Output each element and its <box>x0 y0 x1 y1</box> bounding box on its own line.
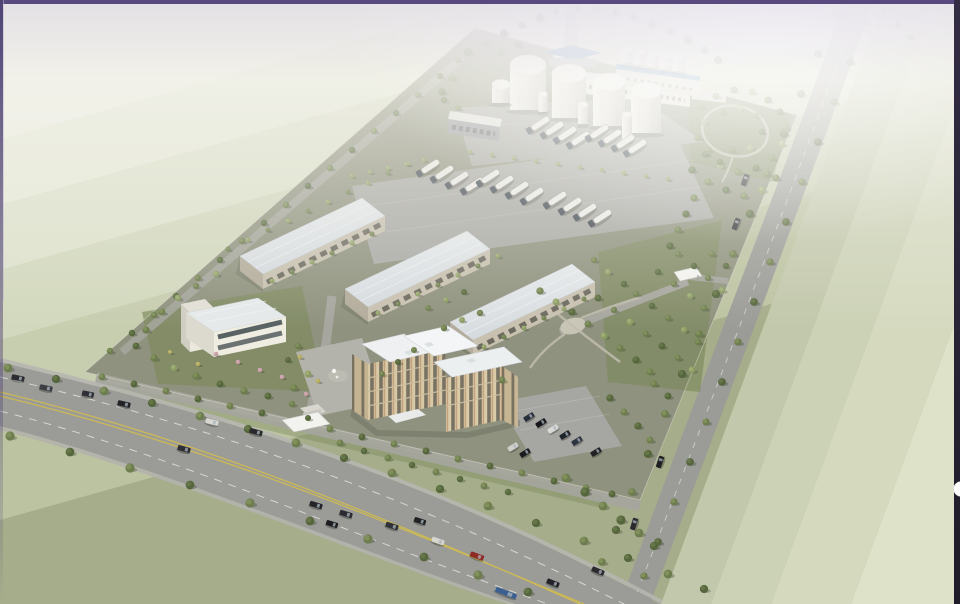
atmospheric-haze <box>0 0 960 330</box>
aerial-rendering <box>0 0 960 604</box>
border-top <box>0 0 960 4</box>
border-left <box>0 0 3 604</box>
border-right <box>954 0 960 604</box>
plaza-sculpture <box>332 369 336 373</box>
